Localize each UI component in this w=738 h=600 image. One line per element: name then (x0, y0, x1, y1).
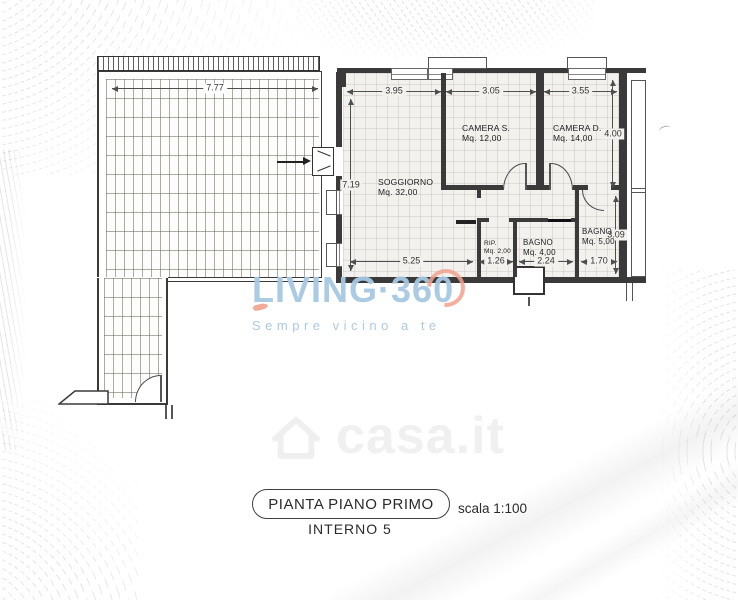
room-name: SOGGIORNO (378, 177, 433, 187)
door-leaf-camera-d (549, 163, 551, 190)
outer-right-strip (631, 80, 646, 277)
entrance-arrow-head (303, 157, 311, 165)
room-label-rip: RIP. Mq. 2,00 (484, 240, 511, 256)
room-label-soggiorno: SOGGIORNO Mq. 32,00 (378, 177, 433, 197)
window-top-1 (391, 68, 428, 80)
room-area: Mq. 4,00 (523, 248, 556, 258)
room-area: Mq. 32,00 (378, 187, 433, 197)
house-outline-icon (268, 406, 324, 466)
sliding-door-bagno1 (548, 219, 571, 222)
wall-corridor-jamb (477, 190, 481, 198)
terrace-paving (106, 79, 319, 277)
room-label-bagno-1: BAGNO Mq. 4,00 (523, 238, 556, 257)
room-label-camera-d: CAMERA D. Mq. 14,00 (553, 123, 602, 143)
window-top-3 (568, 68, 606, 80)
dim-label: 1.70 (587, 257, 611, 267)
terrace-door-leaf (160, 375, 162, 402)
dim-label: 3.95 (382, 87, 406, 97)
door-leaf-camera-s (525, 163, 527, 190)
room-name: CAMERA D. (553, 123, 602, 133)
shaft-tick (528, 297, 530, 306)
dim-bottom-3: 2.24 (519, 261, 573, 262)
entrance-door-box (312, 147, 334, 176)
wall-stub-below-right (626, 283, 633, 301)
room-name: RIP. (484, 240, 511, 248)
outer-strip-divider-1 (631, 188, 646, 189)
watermark-pattern-bottom-left (0, 400, 140, 600)
scale-note: scala 1:100 (458, 501, 527, 516)
wall-rip-top-1 (477, 218, 489, 222)
dim-label: 5.25 (400, 257, 424, 267)
wall-rip-right (513, 218, 517, 277)
entrance-arrow-shaft (277, 161, 304, 163)
dim-label: 3.05 (479, 87, 503, 97)
unit-label: INTERNO 5 (252, 521, 448, 537)
wall-bagno2-left (575, 190, 579, 277)
dim-top-3: 3.55 (544, 91, 617, 92)
wall-left-seg-1 (336, 72, 342, 147)
dim-label: 3.55 (569, 87, 593, 97)
room-label-bagno-2: BAGNO Mq. 5,00 (582, 227, 615, 246)
logo-text: LIVING·360 (252, 272, 454, 308)
window-sill-left-1 (326, 190, 337, 215)
wall-cameras-camerad (536, 73, 544, 190)
title-block: PIANTA PIANO PRIMO (252, 489, 450, 519)
dim-label: 7.19 (340, 180, 362, 191)
wall-right (619, 68, 627, 283)
wall-bagno1-top-1 (517, 218, 548, 222)
terrace-top-wall-hatch (97, 56, 320, 71)
dim-right-top: 4.00 (612, 80, 613, 188)
outer-strip-divider-2 (631, 192, 646, 193)
watermark-pattern-top-center (295, 0, 595, 58)
dim-left: 7.19 (350, 99, 351, 271)
window-sill-left-2 (326, 243, 337, 267)
logo-dot: · (378, 269, 391, 310)
watermark-pattern-left-edge (0, 150, 26, 450)
dim-label: 2.24 (534, 257, 558, 267)
wall-rip-left (477, 218, 481, 277)
wall-corridor-seg-1 (441, 185, 503, 190)
dim-terrace-width: 7.77 (112, 88, 318, 89)
casait-watermark: casa.it (268, 406, 505, 466)
room-label-camera-s: CAMERA S. Mq. 12,00 (462, 123, 510, 143)
wall-left-seg-3 (336, 215, 342, 243)
dim-label: 7.77 (203, 84, 227, 94)
logo-word: LIVING (252, 269, 378, 310)
room-area: Mq. 14,00 (553, 133, 602, 143)
room-name: CAMERA S. (462, 123, 510, 133)
watermark-pattern-right-edge (640, 270, 738, 600)
dim-bottom-4: 1.70 (581, 261, 617, 262)
dim-bottom-2: 1.26 (479, 261, 513, 262)
room-name: BAGNO (523, 238, 556, 248)
shaft-chimney (513, 266, 545, 295)
scan-band-2 (408, 348, 738, 600)
terrace-stub-line-2 (171, 405, 173, 419)
terrace-stub-line (165, 405, 167, 419)
dim-top-1: 3.95 (347, 91, 441, 92)
terrace-step (58, 390, 110, 406)
radiator-bar (456, 220, 476, 224)
plan-title: PIANTA PIANO PRIMO (268, 496, 433, 513)
room-area: Mq. 2,00 (484, 248, 511, 256)
floor-plan-page: casa.it 7.77 (0, 0, 738, 600)
logo-tagline: Sempre vicino a te (252, 318, 454, 333)
room-area: Mq. 12,00 (462, 133, 510, 143)
living360-logo: LIVING·360 Sempre vicino a te (252, 272, 454, 333)
casait-watermark-text: casa.it (336, 410, 505, 462)
room-name: BAGNO (582, 227, 615, 237)
wall-corridor-seg-2 (527, 185, 549, 190)
dim-label: 1.26 (484, 257, 508, 267)
room-area: Mq. 5,00 (582, 237, 615, 247)
dim-top-2: 3.05 (446, 91, 536, 92)
dim-label: 4.00 (602, 129, 624, 140)
dim-bottom-1: 5.25 (350, 261, 473, 262)
pencil-mark (658, 124, 672, 134)
